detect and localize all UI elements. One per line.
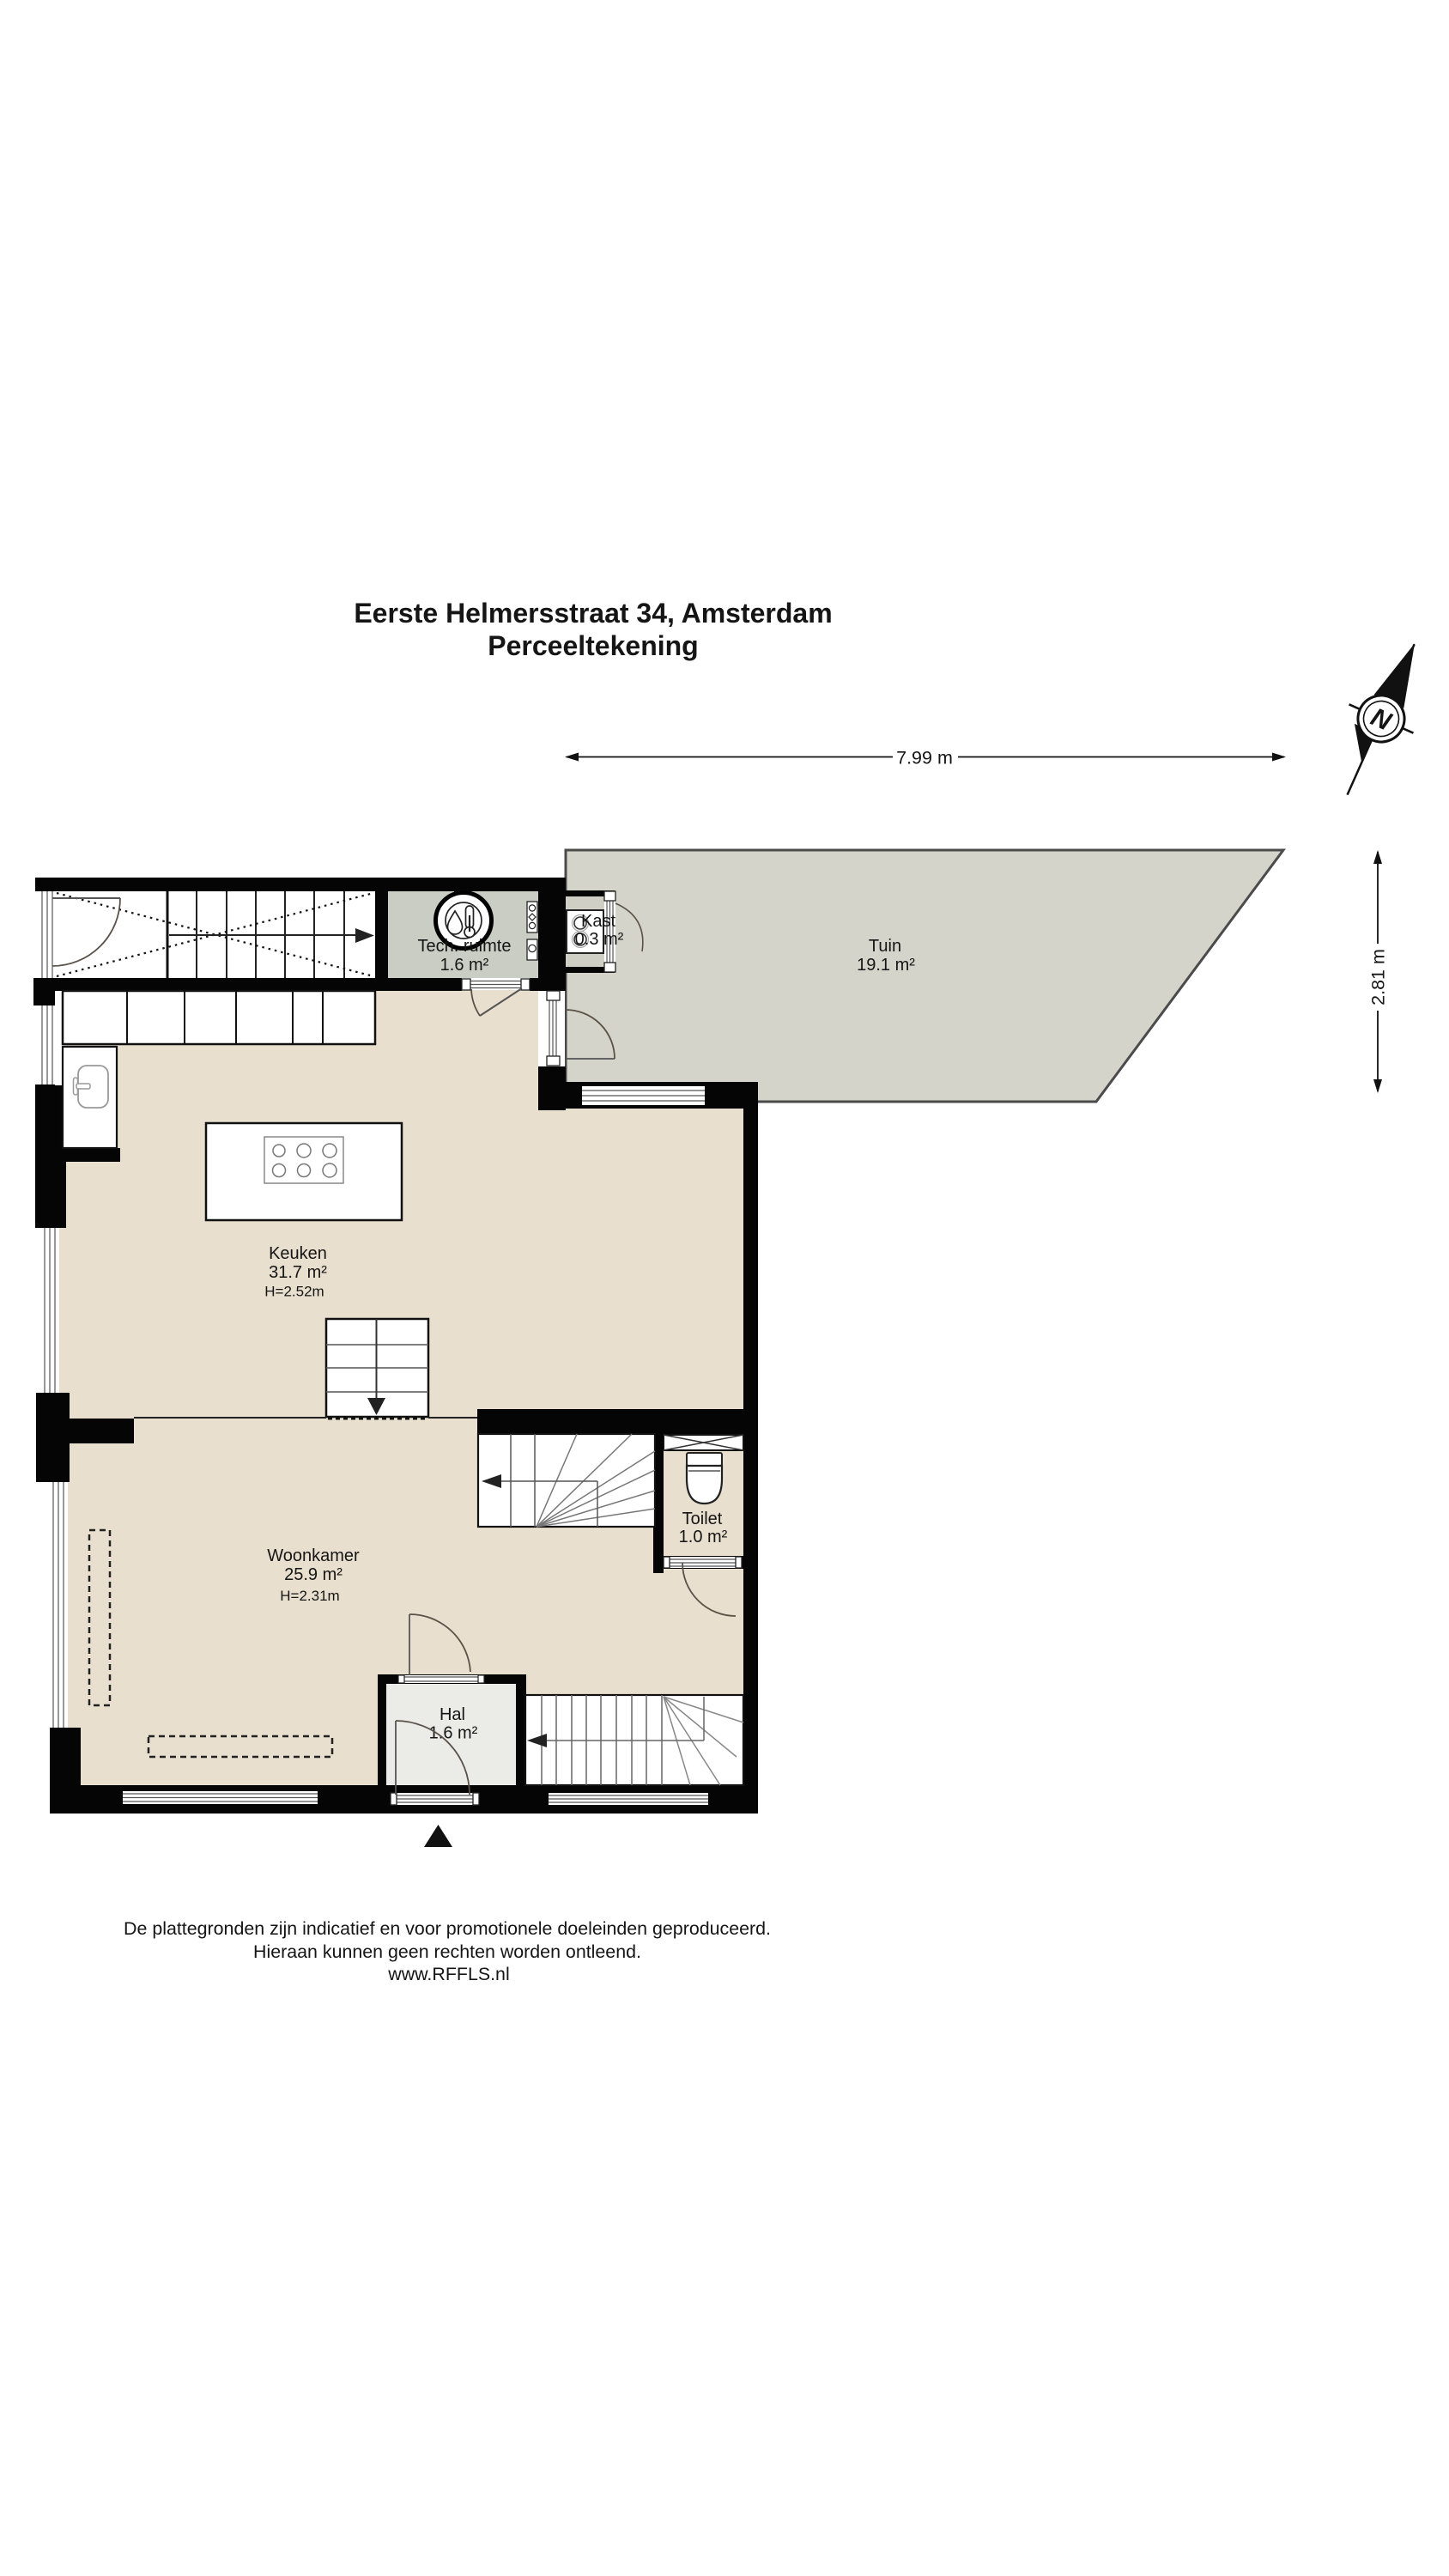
svg-text:H=2.52m: H=2.52m	[264, 1284, 324, 1300]
svg-text:www.RFFLS.nl: www.RFFLS.nl	[387, 1964, 509, 1984]
svg-text:31.7 m²: 31.7 m²	[269, 1263, 327, 1282]
svg-text:2.81 m: 2.81 m	[1368, 949, 1389, 1005]
svg-text:1.6 m²: 1.6 m²	[440, 956, 489, 975]
svg-text:Hal: Hal	[440, 1705, 465, 1724]
svg-text:0.3 m²: 0.3 m²	[575, 930, 624, 949]
svg-text:Hieraan kunnen geen rechten wo: Hieraan kunnen geen rechten worden ontle…	[253, 1941, 641, 1962]
svg-text:Tech. ruimte: Tech. ruimte	[418, 937, 512, 956]
svg-text:Kast: Kast	[581, 912, 615, 931]
svg-text:19.1 m²: 19.1 m²	[857, 956, 915, 975]
svg-text:1.0 m²: 1.0 m²	[679, 1528, 728, 1546]
svg-text:Woonkamer: Woonkamer	[267, 1546, 360, 1565]
svg-text:Keuken: Keuken	[269, 1244, 327, 1263]
svg-text:Perceeltekening: Perceeltekening	[488, 630, 698, 661]
svg-text:Tuin: Tuin	[869, 937, 901, 956]
svg-text:7.99 m: 7.99 m	[896, 748, 953, 769]
svg-text:Toilet: Toilet	[682, 1510, 723, 1528]
svg-text:25.9 m²: 25.9 m²	[284, 1565, 343, 1584]
svg-text:Eerste Helmersstraat 34, Amste: Eerste Helmersstraat 34, Amsterdam	[354, 598, 832, 629]
svg-text:De plattegronden zijn indicati: De plattegronden zijn indicatief en voor…	[124, 1918, 771, 1939]
svg-text:H=2.31m: H=2.31m	[280, 1588, 339, 1604]
